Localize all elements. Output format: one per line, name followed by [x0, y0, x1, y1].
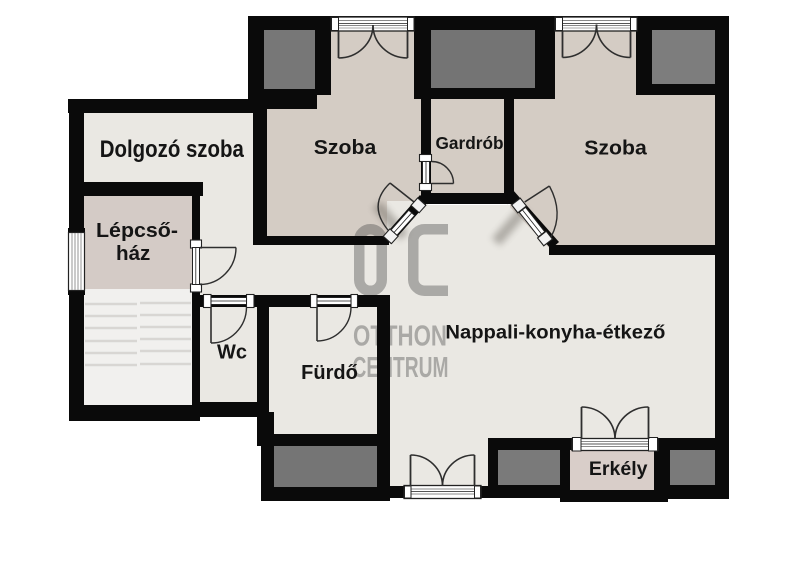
svg-text:Lépcső-: Lépcső- [96, 219, 178, 242]
svg-text:Dolgozó szoba: Dolgozó szoba [100, 136, 245, 163]
svg-text:CENTRUM: CENTRUM [353, 352, 449, 384]
svg-text:Szoba: Szoba [314, 137, 377, 159]
svg-text:Wc: Wc [217, 342, 247, 364]
svg-text:OTTHON: OTTHON [353, 321, 447, 353]
svg-text:Szoba: Szoba [584, 138, 647, 160]
svg-text:Erkély: Erkély [589, 458, 648, 480]
svg-text:Fürdő: Fürdő [301, 362, 358, 384]
svg-text:Gardrób: Gardrób [436, 133, 504, 153]
svg-text:Nappali-konyha-étkező: Nappali-konyha-étkező [445, 321, 665, 343]
svg-text:ház: ház [116, 242, 150, 265]
